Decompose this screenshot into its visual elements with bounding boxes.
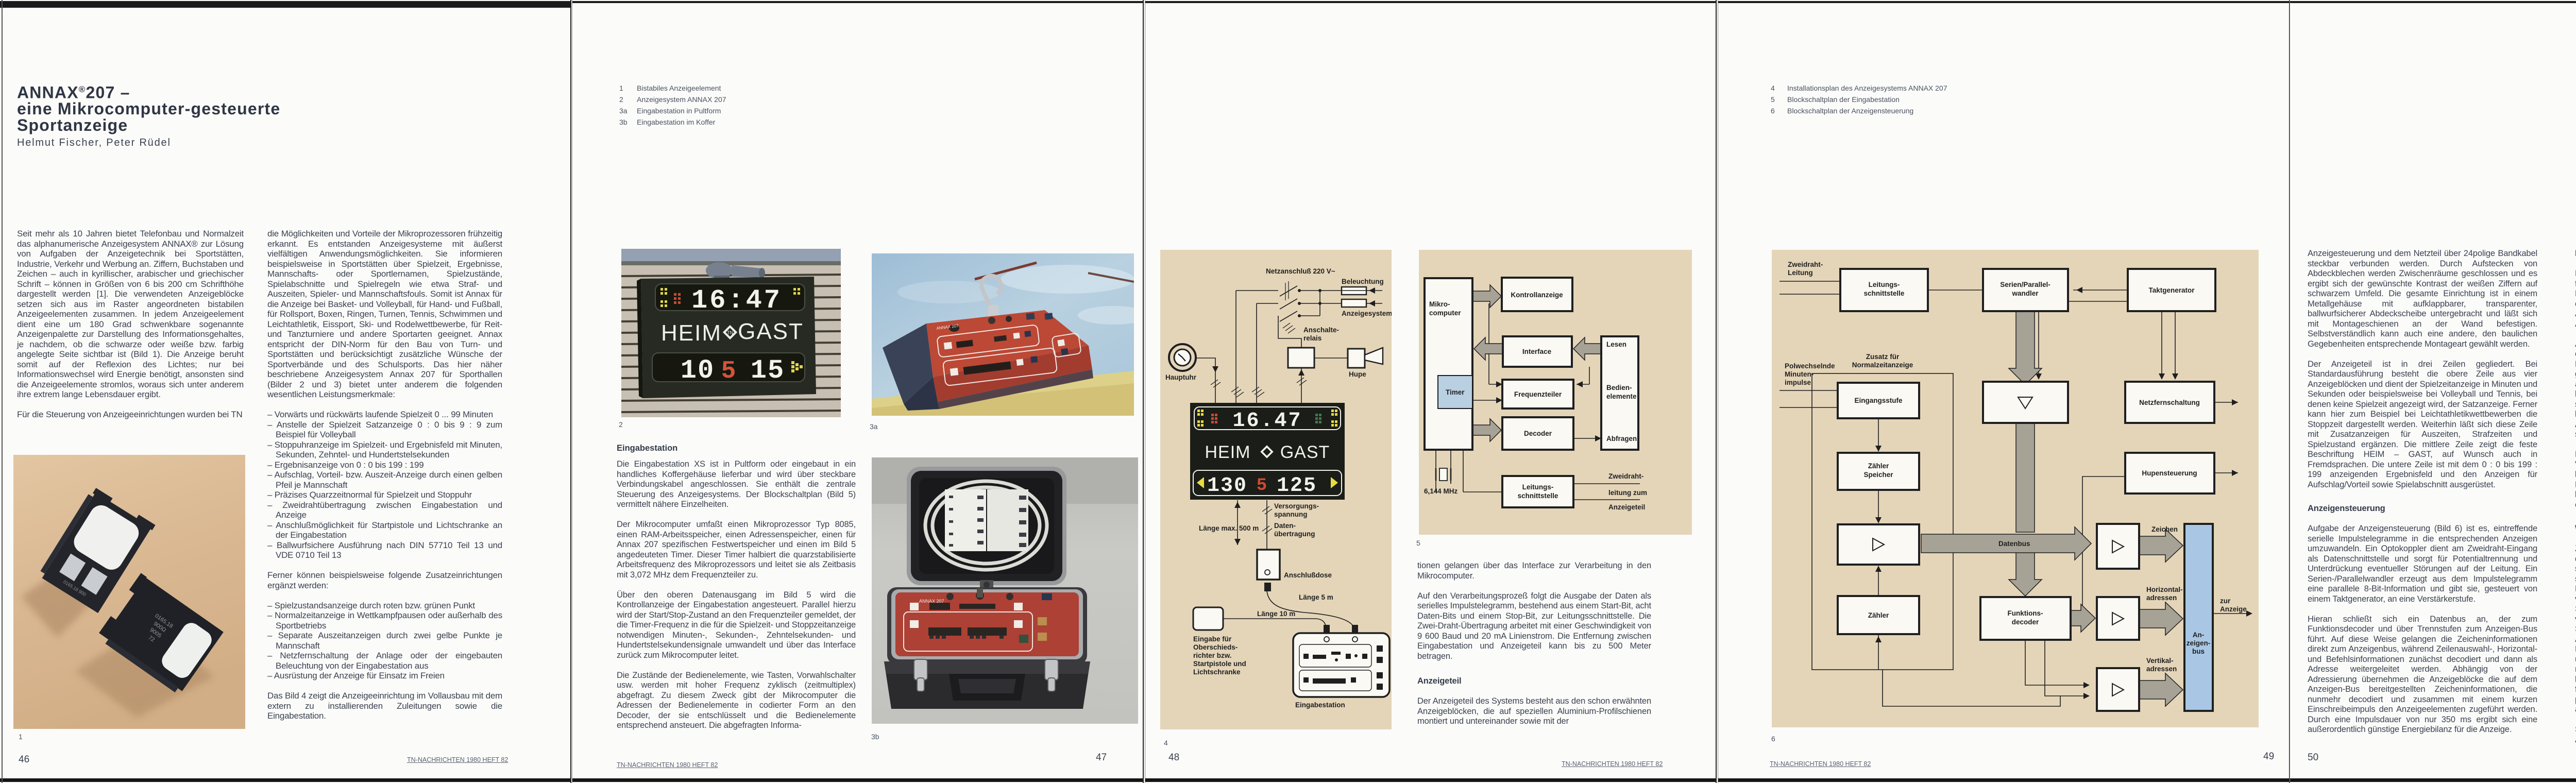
svg-text:Anschlußdose: Anschlußdose [1284, 571, 1332, 579]
svg-text:Lesen: Lesen [1606, 341, 1626, 348]
svg-text:An-: An- [2193, 631, 2205, 639]
svg-text:richter bzw.: richter bzw. [1193, 652, 1232, 659]
svg-text:schnittstelle: schnittstelle [1518, 492, 1558, 500]
svg-text:Hupensteuerung: Hupensteuerung [2142, 469, 2197, 477]
svg-text:relais: relais [1303, 334, 1321, 342]
svg-text:Frequenzteiler: Frequenzteiler [1514, 390, 1562, 398]
svg-text:Anzeige: Anzeige [2220, 605, 2247, 613]
svg-text:Anzeigesystem: Anzeigesystem [1342, 310, 1392, 317]
svg-text:übertragung: übertragung [1274, 530, 1315, 538]
svg-text:GAST: GAST [738, 319, 804, 344]
svg-text:zeigen-: zeigen- [2187, 639, 2211, 647]
svg-text:Zeichen: Zeichen [2151, 525, 2178, 533]
svg-text:Daten-: Daten- [1274, 522, 1296, 530]
svg-text:Polwechselnde: Polwechselnde [1785, 362, 1835, 370]
svg-text:Speicher: Speicher [1863, 471, 1893, 479]
svg-text:Netzanschluß 220 V~: Netzanschluß 220 V~ [1266, 267, 1335, 275]
svg-text:Versorgungs-: Versorgungs- [1274, 502, 1319, 510]
svg-text:bus: bus [2192, 648, 2205, 655]
svg-text:Leitungs-: Leitungs- [1869, 281, 1900, 288]
svg-text:adressen: adressen [2146, 665, 2177, 673]
svg-text:Eingangsstufe: Eingangsstufe [1854, 397, 1903, 404]
svg-text:Abfragen: Abfragen [1606, 435, 1637, 442]
svg-text:Startpistole und: Startpistole und [1193, 660, 1246, 668]
svg-text:Kontrollanzeige: Kontrollanzeige [1511, 291, 1563, 299]
svg-text:HEIM: HEIM [1205, 442, 1251, 462]
svg-text:schnittstelle: schnittstelle [1864, 290, 1905, 297]
svg-text:Vertikal-: Vertikal- [2146, 657, 2174, 665]
svg-text:125: 125 [1277, 474, 1317, 498]
svg-text:Normalzeitanzeige: Normalzeitanzeige [1852, 361, 1913, 369]
svg-text:Taktgenerator: Taktgenerator [2148, 286, 2195, 294]
svg-text:Anzeigeteil: Anzeigeteil [1608, 503, 1645, 511]
svg-text:Länge max. 500 m: Länge max. 500 m [1199, 524, 1259, 532]
svg-text:zur: zur [2220, 597, 2231, 605]
svg-text:Interface: Interface [1522, 348, 1552, 355]
svg-text:Länge 10 m: Länge 10 m [1257, 610, 1295, 618]
svg-text:decoder: decoder [2012, 618, 2039, 626]
svg-text:computer: computer [1429, 309, 1461, 317]
svg-text:TN: TN [727, 330, 733, 335]
svg-text:Eingabestation: Eingabestation [1295, 701, 1345, 709]
svg-text:Mikro-: Mikro- [1429, 300, 1450, 308]
svg-text:Decoder: Decoder [1524, 430, 1552, 437]
svg-text:Oberschieds-: Oberschieds- [1193, 643, 1238, 651]
svg-text:Bedien-: Bedien- [1606, 384, 1632, 391]
svg-text:spannung: spannung [1274, 510, 1308, 518]
svg-text:leitung zum: leitung zum [1608, 489, 1647, 497]
svg-text:Serien/Parallel-: Serien/Parallel- [2000, 281, 2050, 288]
svg-text:Hauptuhr: Hauptuhr [1165, 373, 1197, 381]
svg-text:Zweidraht-: Zweidraht- [1608, 472, 1643, 480]
svg-text:impulse: impulse [1785, 379, 1811, 386]
svg-text:Eingabe für: Eingabe für [1193, 635, 1232, 643]
svg-text:5: 5 [1257, 476, 1267, 496]
svg-text:Minuten-: Minuten- [1785, 370, 1814, 378]
svg-text:Datenbus: Datenbus [1998, 540, 2030, 548]
svg-text:Zusatz für: Zusatz für [1866, 353, 1900, 361]
svg-text:Lichtschranke: Lichtschranke [1193, 668, 1241, 676]
svg-text:Anschalte-: Anschalte- [1303, 326, 1339, 334]
svg-text:GAST: GAST [1280, 442, 1330, 462]
svg-text:Leitungs-: Leitungs- [1522, 483, 1554, 491]
svg-text:elemente: elemente [1606, 393, 1637, 400]
svg-text:16.47: 16.47 [1232, 410, 1302, 433]
svg-text:130: 130 [1207, 474, 1247, 498]
svg-text:5: 5 [721, 358, 736, 385]
svg-text:wandler: wandler [2011, 290, 2039, 297]
svg-text:adressen: adressen [2146, 594, 2177, 602]
svg-text:Hupe: Hupe [1349, 370, 1366, 378]
svg-text:Leitung: Leitung [1788, 269, 1813, 277]
svg-text:15: 15 [751, 355, 785, 386]
svg-text:Zähler: Zähler [1868, 462, 1889, 470]
svg-text:6,144 MHz: 6,144 MHz [1424, 487, 1458, 495]
svg-text:Funktions-: Funktions- [2008, 609, 2043, 617]
svg-text:Zweidraht-: Zweidraht- [1788, 261, 1823, 268]
svg-text:Beleuchtung: Beleuchtung [1342, 278, 1384, 285]
svg-text:Horizontal-: Horizontal- [2146, 586, 2183, 593]
svg-text:16:47: 16:47 [691, 285, 782, 316]
svg-text:Zähler: Zähler [1868, 611, 1889, 619]
svg-text:Timer: Timer [1446, 388, 1465, 396]
svg-text:Netzfernschaltung: Netzfernschaltung [2139, 399, 2200, 406]
svg-text:10: 10 [681, 355, 715, 386]
svg-text:Länge 5 m: Länge 5 m [1299, 593, 1333, 601]
svg-text:HEIM: HEIM [661, 320, 722, 346]
